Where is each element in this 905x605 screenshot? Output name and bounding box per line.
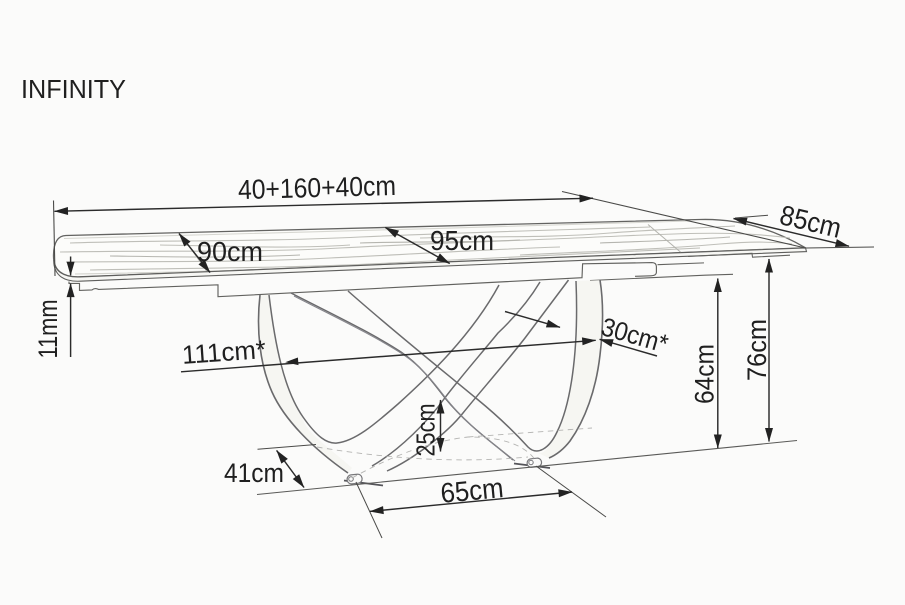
svg-text:25cm: 25cm: [411, 404, 441, 457]
svg-text:90cm: 90cm: [197, 236, 263, 267]
svg-text:111cm*: 111cm*: [181, 334, 267, 370]
svg-text:INFINITY: INFINITY: [21, 74, 126, 104]
svg-text:41cm: 41cm: [224, 458, 284, 488]
svg-text:11mm: 11mm: [33, 300, 63, 359]
svg-text:95cm: 95cm: [430, 225, 494, 256]
svg-text:40+160+40cm: 40+160+40cm: [238, 170, 397, 205]
svg-text:76cm: 76cm: [742, 319, 772, 381]
svg-text:65cm: 65cm: [439, 472, 505, 509]
svg-text:64cm: 64cm: [690, 344, 720, 404]
